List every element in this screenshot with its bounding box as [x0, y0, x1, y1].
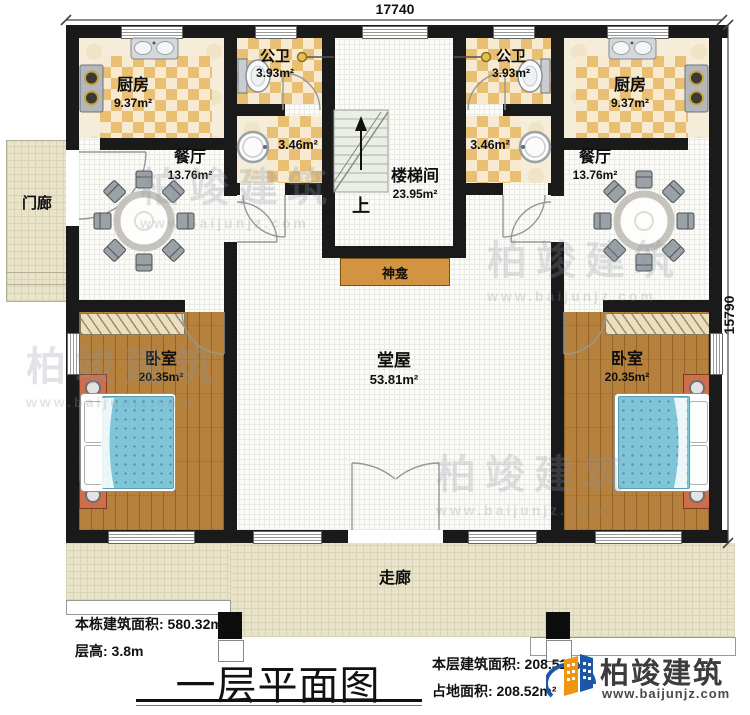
- wall-segment: [285, 183, 335, 195]
- wall-segment: [548, 183, 564, 195]
- wash-left-floor: [237, 116, 267, 183]
- corridor-floor-left: [66, 543, 230, 600]
- floor-plan-page: 神龛: [0, 0, 750, 715]
- pillow: [84, 445, 103, 485]
- dimension-top: 17740: [364, 1, 426, 17]
- window: [121, 26, 183, 39]
- dimension-right: 15790: [721, 290, 737, 340]
- wall-segment: [224, 242, 237, 530]
- room-label-wash-right: 3.46m²: [460, 139, 520, 152]
- bed-left: [80, 393, 176, 492]
- room-label-bedroom-left: 卧室20.35m²: [126, 352, 196, 386]
- building-area-note: 本栋建筑面积: 580.32m²: [75, 614, 355, 634]
- wall-segment: [224, 183, 240, 195]
- corridor-step-left: [66, 600, 231, 615]
- room-label-porch: 门廊: [14, 196, 60, 212]
- porch-floor: [6, 140, 68, 302]
- room-label-kitchen-right: 厨房9.37m²: [585, 78, 675, 112]
- wardrobe-left: [80, 313, 185, 335]
- shrine-shelf: 神龛: [340, 258, 450, 286]
- wall-segment: [603, 300, 709, 312]
- wall-segment: [79, 300, 185, 312]
- title-underline-thin: [136, 705, 422, 706]
- wall-segment: [709, 25, 722, 543]
- wall-segment: [66, 25, 79, 543]
- pillar: [546, 612, 570, 639]
- room-label-dining-right: 餐厅13.76m²: [550, 150, 640, 184]
- door-opening: [66, 150, 79, 226]
- window: [468, 531, 537, 544]
- window: [253, 531, 322, 544]
- brand-url: www.baijunjz.com: [602, 686, 730, 701]
- wall-segment: [237, 104, 285, 116]
- window: [607, 26, 669, 39]
- room-label-hall: 堂屋53.81m²: [354, 352, 434, 388]
- stairs-up-label: 上: [350, 197, 372, 216]
- mattress: [618, 396, 690, 489]
- door-opening: [348, 530, 443, 543]
- pillow: [689, 401, 708, 443]
- room-label-wash-left: 3.46m²: [268, 139, 328, 152]
- window: [108, 531, 195, 544]
- room-label-dining-left: 餐厅13.76m²: [145, 150, 235, 184]
- window: [67, 333, 80, 375]
- room-label-bedroom-right: 卧室20.35m²: [592, 352, 662, 386]
- wall-segment: [551, 242, 564, 530]
- wall-segment: [322, 246, 466, 258]
- shrine-label: 神龛: [382, 263, 408, 282]
- window: [493, 26, 535, 39]
- room-label-kitchen-left: 厨房9.37m²: [88, 78, 178, 112]
- wall-segment: [453, 183, 503, 195]
- title-underline: [136, 699, 422, 702]
- bed-right: [614, 393, 710, 492]
- room-label-stairwell: 楼梯间23.95m²: [371, 169, 459, 203]
- window: [362, 26, 428, 39]
- window: [255, 26, 297, 39]
- wash-right-floor: [521, 116, 551, 183]
- wall-segment: [503, 104, 551, 116]
- pillow: [84, 401, 103, 443]
- window: [595, 531, 682, 544]
- wardrobe-right: [605, 313, 710, 335]
- mattress: [102, 396, 174, 489]
- brand-logo: 柏竣建筑 www.baijunjz.com: [546, 646, 746, 711]
- pillow: [689, 445, 708, 485]
- room-label-corridor: 走廊: [365, 571, 425, 588]
- room-label-bath-right: 公卫3.93m²: [476, 49, 546, 81]
- porch-step-line: [6, 284, 66, 285]
- room-label-bath-left: 公卫3.93m²: [240, 49, 310, 81]
- brand-logo-icon: [546, 646, 598, 706]
- porch-step-line: [6, 272, 66, 273]
